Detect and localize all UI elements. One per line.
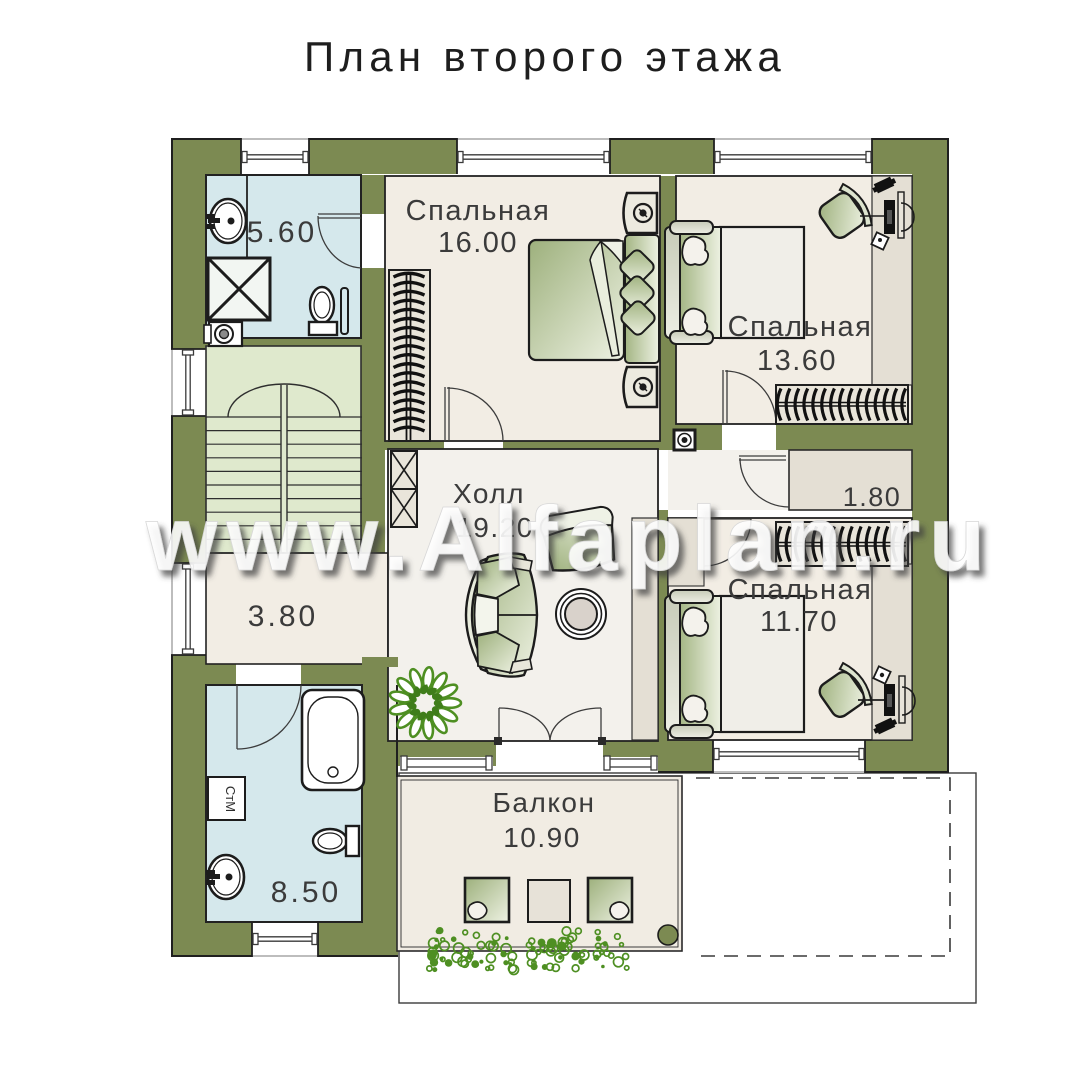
- svg-text:10.90: 10.90: [503, 822, 581, 853]
- svg-text:Спальная: Спальная: [728, 311, 873, 343]
- svg-text:11.70: 11.70: [760, 606, 838, 638]
- svg-text:13.60: 13.60: [757, 345, 837, 377]
- svg-text:План второго этажа: План второго этажа: [304, 33, 786, 80]
- svg-text:Спальная: Спальная: [406, 195, 551, 227]
- svg-text:Балкон: Балкон: [493, 787, 596, 818]
- svg-text:СтМ: СтМ: [223, 786, 238, 812]
- svg-text:8.50: 8.50: [271, 876, 341, 909]
- svg-text:3.80: 3.80: [248, 600, 318, 633]
- svg-text:www.Alfaplan.ru: www.Alfaplan.ru: [145, 488, 994, 590]
- svg-text:5.60: 5.60: [247, 216, 317, 249]
- svg-text:16.00: 16.00: [438, 227, 518, 259]
